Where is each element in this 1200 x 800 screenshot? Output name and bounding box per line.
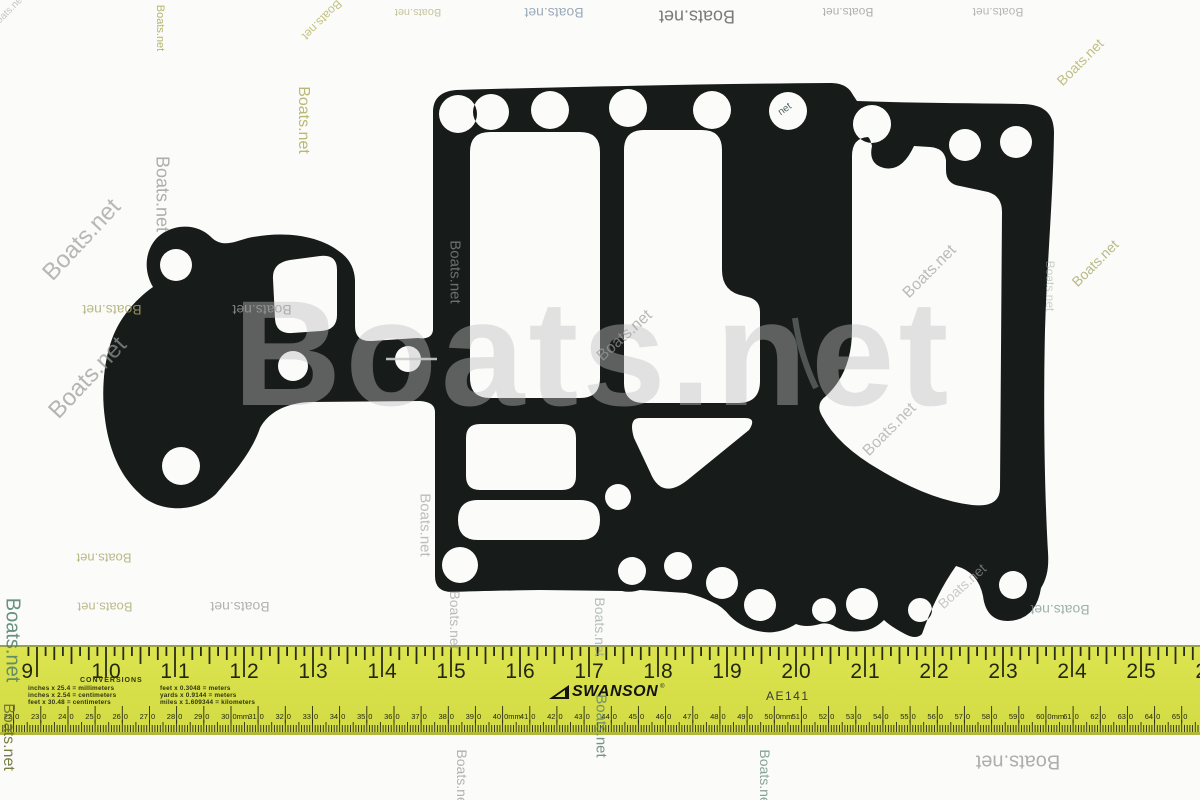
ruler-bottom-edge: [0, 732, 1200, 735]
ruler-number: 22: [4, 712, 12, 721]
ruler-number: 0: [803, 712, 807, 721]
ruler-number: 0: [640, 712, 644, 721]
conversions-title: CONVERSIONS: [28, 677, 288, 684]
ruler-number: 6: [523, 660, 535, 683]
ruler-number: 0: [368, 712, 372, 721]
ruler-number: 26: [112, 712, 120, 721]
ruler-number: 0: [151, 712, 155, 721]
ruler-number: 35: [357, 712, 365, 721]
ruler-number: 9: [730, 660, 742, 683]
ruler-number: 0: [42, 712, 46, 721]
ruler-number: 1: [643, 660, 655, 683]
ruler-number: 51: [792, 712, 800, 721]
ruler-number: 5: [454, 660, 466, 683]
ruler-number: 27: [140, 712, 148, 721]
ruler-number: 54: [873, 712, 881, 721]
conversion-line: yards x 0.9144 = meters: [160, 692, 237, 699]
ruler-number: 2: [1126, 660, 1138, 683]
ruler-number: 0: [314, 712, 318, 721]
ruler-number: 60: [1036, 712, 1044, 721]
ruler-number: 23: [31, 712, 39, 721]
ruler-number: 1: [436, 660, 448, 683]
ruler-number: 44: [601, 712, 609, 721]
ruler-number: 0: [1075, 712, 1079, 721]
ruler-number: 30: [221, 712, 229, 721]
ruler-number: 0: [15, 712, 19, 721]
ruler: 9101112131415161718192021222324252622023…: [0, 645, 1200, 735]
swanson-square-icon: [548, 684, 570, 700]
conversion-line: miles x 1.609344 = kilometers: [160, 699, 255, 706]
ruler-number: 0: [1156, 712, 1160, 721]
ruler-number: 0: [1183, 712, 1187, 721]
ruler-number: 58: [982, 712, 990, 721]
ruler-number: 0: [993, 712, 997, 721]
ruler-number: 31: [248, 712, 256, 721]
ruler-number: 49: [737, 712, 745, 721]
ruler-number: 46: [656, 712, 664, 721]
ruler-number: 63: [1118, 712, 1126, 721]
ruler-number: 2: [1057, 660, 1069, 683]
ruler-number: 48: [710, 712, 718, 721]
ruler-number: 42: [547, 712, 555, 721]
ruler-number: 38: [438, 712, 446, 721]
ruler-number: 4: [1075, 660, 1087, 683]
ruler-brand: SWANSON ®: [548, 683, 665, 701]
ruler-number: 0: [531, 712, 535, 721]
ruler-number: 0: [939, 712, 943, 721]
ruler-number: 24: [58, 712, 66, 721]
ruler-number: 0mm: [776, 712, 793, 721]
ruler-number: 47: [683, 712, 691, 721]
ruler-number: 56: [927, 712, 935, 721]
ruler-number: 1: [367, 660, 379, 683]
conversion-line: feet x 30.48 = centimeters: [28, 699, 146, 706]
ruler-number: 62: [1090, 712, 1098, 721]
ruler-number: 1: [868, 660, 880, 683]
ruler-number: 59: [1009, 712, 1017, 721]
ruler-number: 0: [1129, 712, 1133, 721]
ruler-number: 61: [1063, 712, 1071, 721]
ruler-number: 45: [629, 712, 637, 721]
ruler-number: 1: [298, 660, 310, 683]
ruler-number: 0: [1102, 712, 1106, 721]
ruler-number: 0: [749, 712, 753, 721]
ruler-number: 34: [330, 712, 338, 721]
ruler-number: 2: [937, 660, 949, 683]
ruler-number: 0: [884, 712, 888, 721]
ruler-model-number: AE141: [766, 689, 810, 703]
ruler-number: 7: [592, 660, 604, 683]
ruler-number: 8: [661, 660, 673, 683]
ruler-number: 0: [799, 660, 811, 683]
ruler-number: 0: [667, 712, 671, 721]
ruler-number: 53: [846, 712, 854, 721]
conversion-line: feet x 0.3048 = meters: [160, 685, 231, 692]
ruler-number: 0: [124, 712, 128, 721]
ruler-number: 0mm: [232, 712, 249, 721]
ruler-number: 0: [178, 712, 182, 721]
ruler-number: 0: [694, 712, 698, 721]
ruler-number: 57: [955, 712, 963, 721]
ruler-number: 37: [411, 712, 419, 721]
ruler-number: 0: [586, 712, 590, 721]
ruler-number: 55: [900, 712, 908, 721]
ruler-number: 0: [260, 712, 264, 721]
ruler-number: 0: [450, 712, 454, 721]
ruler-number: 0: [966, 712, 970, 721]
conversion-line: inches x 25.4 = millimeters: [28, 685, 146, 692]
ruler-number: 5: [1144, 660, 1156, 683]
ruler-number: 0mm: [504, 712, 521, 721]
ruler-number: 1: [574, 660, 586, 683]
ruler-number: 41: [520, 712, 528, 721]
ruler-number: 1: [712, 660, 724, 683]
registered-mark: ®: [660, 684, 664, 690]
ruler-number: 50: [764, 712, 772, 721]
ruler-number: 43: [574, 712, 582, 721]
ruler-number: 0: [558, 712, 562, 721]
ruler-number: 2: [781, 660, 793, 683]
ruler-number: 40: [493, 712, 501, 721]
ruler-number: 2: [850, 660, 862, 683]
ruler-number: 28: [167, 712, 175, 721]
product-photo: Boats.net net Boats.netBoats.netBoats.ne…: [0, 0, 1200, 800]
ruler-number: 39: [466, 712, 474, 721]
ruler-number: 64: [1145, 712, 1153, 721]
ruler-number: 36: [384, 712, 392, 721]
ruler-number: 29: [194, 712, 202, 721]
ruler-number: 65: [1172, 712, 1180, 721]
ruler-number: 0: [613, 712, 617, 721]
ruler-number: 0: [341, 712, 345, 721]
ruler-number: 0: [205, 712, 209, 721]
ruler-number: 0mm: [1047, 712, 1064, 721]
ruler-number: 52: [819, 712, 827, 721]
ruler-number: 2: [919, 660, 931, 683]
ruler-number: 0: [477, 712, 481, 721]
ruler-number: 32: [275, 712, 283, 721]
ruler-number: 3: [316, 660, 328, 683]
ruler-number: 0: [1020, 712, 1024, 721]
ruler-number: 0: [912, 712, 916, 721]
ruler-number: 2: [988, 660, 1000, 683]
ruler-number: 0: [69, 712, 73, 721]
ruler-number: 0: [287, 712, 291, 721]
ruler-number: 0: [721, 712, 725, 721]
ruler-number: 25: [85, 712, 93, 721]
ruler-number: 0: [830, 712, 834, 721]
ruler-number: 2: [1195, 660, 1200, 683]
ruler-number: 3: [1006, 660, 1018, 683]
conversion-line: inches x 2.54 = centimeters: [28, 692, 146, 699]
ruler-number: 33: [303, 712, 311, 721]
ruler-number: 0: [857, 712, 861, 721]
ruler-number: 1: [505, 660, 517, 683]
ruler-number: 0: [395, 712, 399, 721]
brand-name: SWANSON: [572, 683, 658, 701]
ruler-conversions: CONVERSIONS inches x 25.4 = millimeters …: [28, 677, 288, 707]
ruler-number: 0: [423, 712, 427, 721]
ruler-number: 0: [97, 712, 101, 721]
ruler-number: 4: [385, 660, 397, 683]
